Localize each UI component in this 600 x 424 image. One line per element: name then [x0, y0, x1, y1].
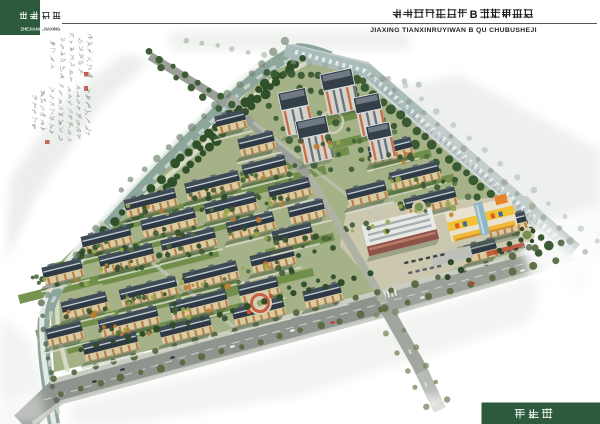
svg-text:JIAXING TIANXINRUYIWAN B QU CH: JIAXING TIANXINRUYIWAN B QU CHUBUSHEJI [370, 27, 537, 34]
svg-text:B: B [470, 9, 478, 21]
svg-text:ZHEJIANG.JIAXING: ZHEJIANG.JIAXING [21, 27, 61, 32]
